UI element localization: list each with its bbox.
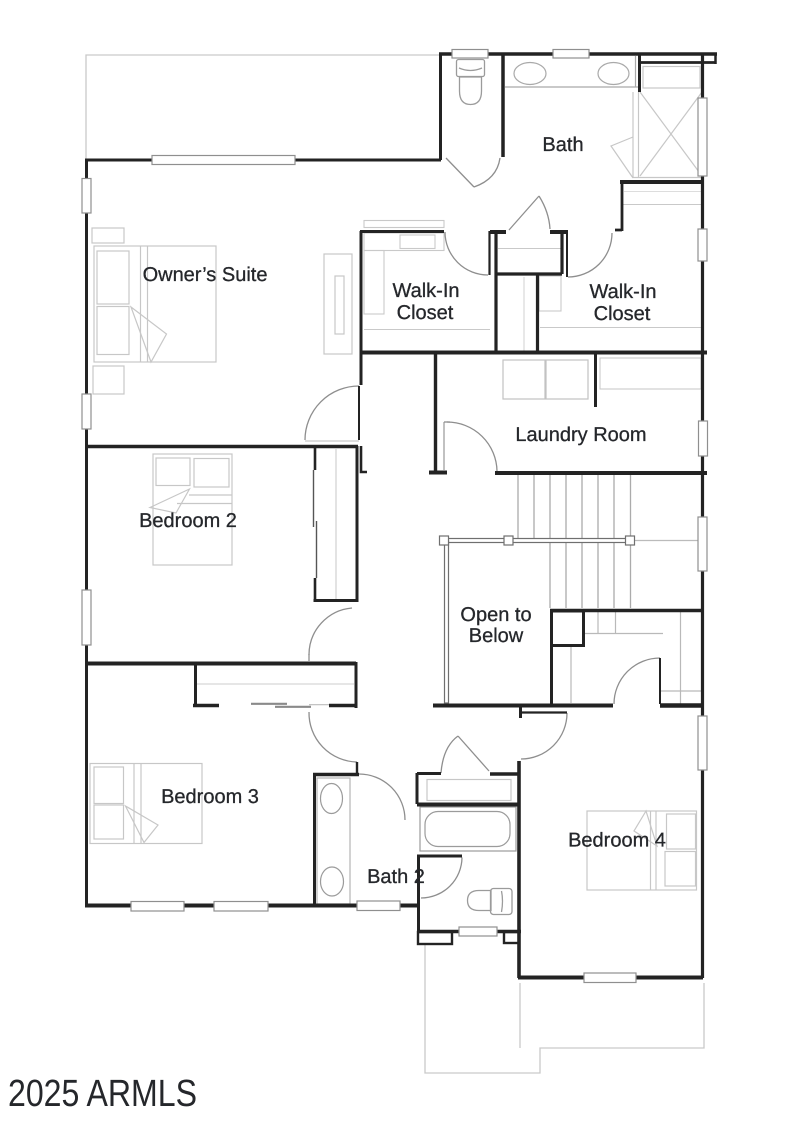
svg-text:Below: Below: [469, 625, 524, 647]
svg-text:Closet: Closet: [397, 302, 454, 324]
svg-text:Open to: Open to: [460, 604, 531, 626]
svg-text:Bath 2: Bath 2: [367, 866, 425, 888]
svg-text:Bedroom 2: Bedroom 2: [139, 510, 237, 532]
svg-text:Walk-In: Walk-In: [392, 280, 459, 302]
svg-text:Walk-In: Walk-In: [589, 281, 656, 303]
svg-text:Bedroom 4: Bedroom 4: [568, 830, 666, 852]
svg-text:Closet: Closet: [594, 303, 651, 325]
svg-text:2025 ARMLS: 2025 ARMLS: [8, 1073, 197, 1115]
svg-text:Bedroom 3: Bedroom 3: [161, 786, 259, 808]
svg-text:Owner’s Suite: Owner’s Suite: [143, 264, 268, 286]
svg-text:Bath: Bath: [542, 134, 583, 156]
svg-text:Laundry Room: Laundry Room: [515, 424, 646, 446]
